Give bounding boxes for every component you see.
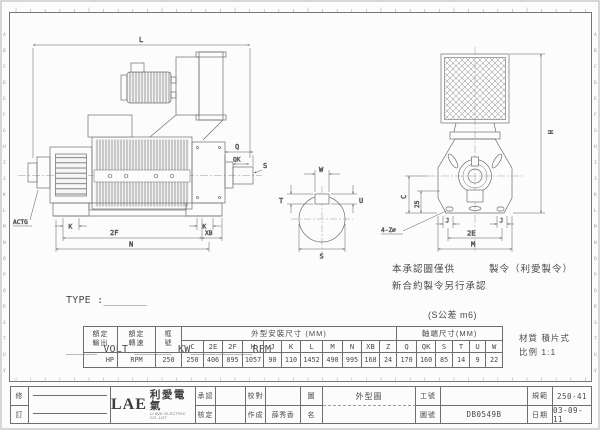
zone-letter: K <box>594 192 597 198</box>
approval-note-3: 新合約製令另行承認 <box>392 278 487 292</box>
dim-header-cell: C <box>182 341 204 353</box>
spec-value: 250-41 <box>553 387 591 405</box>
zone-letter: Q <box>3 288 6 294</box>
dim-header-cell: QK <box>417 341 436 353</box>
date-value: 03-09-11 <box>553 405 591 423</box>
zone-letter: C <box>594 64 597 70</box>
shaft-dims-group-header: 軸端尺寸(MM) <box>397 327 503 341</box>
rated-speed-header: 額定轉速 <box>118 327 156 353</box>
dim-value-cell: 406 <box>204 353 223 368</box>
dim-header-cell: K <box>282 341 301 353</box>
zone-letter: H <box>594 144 597 150</box>
zone-letter: T <box>3 336 6 342</box>
zone-letter: V <box>3 368 6 374</box>
zone-letter: E <box>3 96 6 102</box>
dim-25: 25 <box>414 200 421 208</box>
dim-value-cell: 160 <box>417 353 436 368</box>
zone-letter: N <box>3 240 6 246</box>
zone-letter: U <box>594 352 597 358</box>
proof-value <box>266 387 301 405</box>
approve-label: 承認 <box>196 387 216 405</box>
zone-letter: Q <box>594 288 597 294</box>
drawing-no-value: DB0549B <box>441 405 528 423</box>
title-block: 修 LAE 利愛電氣 LI AVE ELECTRIC CO.,LDT 承認 校對… <box>10 386 592 424</box>
made-by-value: 薛秀香 <box>266 405 301 423</box>
zone-letter: J <box>3 176 6 182</box>
dim-value-cell: 170 <box>397 353 417 368</box>
work-no-label: 工號 <box>416 387 441 405</box>
zone-letter: B <box>3 48 6 54</box>
check-label: 核定 <box>196 405 216 423</box>
dim-N: N <box>129 241 133 249</box>
dim-header-cell: XB <box>362 341 380 353</box>
check-value <box>216 405 246 423</box>
dim-ACTG: ACTG <box>13 219 28 226</box>
rated-speed-value: RPM <box>118 353 156 368</box>
dim-H: H <box>546 130 554 134</box>
dim-value-cell: 14 <box>453 353 470 368</box>
dim-header-cell: M <box>323 341 343 353</box>
dim-value-cell: 168 <box>362 353 380 368</box>
zone-letter: H <box>3 144 6 150</box>
dim-header-cell: N <box>343 341 362 353</box>
dim-value-cell: 85 <box>436 353 453 368</box>
made-label: 作成 <box>246 405 266 423</box>
dim-S-side: S <box>263 162 267 170</box>
zone-letter: L <box>3 208 6 214</box>
zone-letter: R <box>594 304 597 310</box>
proof-label: 校對 <box>246 387 266 405</box>
dim-value-cell: 22 <box>486 353 503 368</box>
zone-letter: O <box>594 256 597 262</box>
dim-header-cell: 2E <box>204 341 223 353</box>
dim-value-cell: 1057 <box>243 353 264 368</box>
dim-header-cell: Z <box>380 341 397 353</box>
zone-letter: B <box>594 48 597 54</box>
frame-no-header: 框號 <box>156 327 182 353</box>
scale-note: 比例 1:1 <box>519 345 570 359</box>
dim-value-cell: 490 <box>323 353 343 368</box>
material-note: 材質 積片式 <box>519 331 570 345</box>
dim-XB: XB <box>205 230 213 237</box>
side-view <box>18 52 262 216</box>
zone-letter: S <box>3 320 6 326</box>
front-view <box>427 47 523 253</box>
dimension-table: 額定輸出 額定轉速 框號 外型安裝尺寸 (MM) 軸端尺寸(MM) C 2E 2… <box>83 326 503 368</box>
zone-letter: N <box>594 240 597 246</box>
drawing-name: 外型圖 <box>323 387 416 405</box>
dim-header-cell: L <box>301 341 323 353</box>
dim-S-section: S <box>320 253 324 261</box>
dim-header-cell: 2F <box>223 341 243 353</box>
drawing-name-label-top: 圖 <box>301 387 323 405</box>
zone-letter: V <box>594 368 597 374</box>
dim-value-cell: 1452 <box>301 353 323 368</box>
shaft-section-view <box>291 186 353 254</box>
company-name-cn: 利愛電氣 <box>150 390 195 411</box>
zone-letter: E <box>594 96 597 102</box>
frame-no-value: 250 <box>156 353 182 368</box>
dim-header-cell: W <box>486 341 503 353</box>
dim-L: L <box>139 36 143 44</box>
shaft-section-dimensions: W T U S <box>279 166 363 261</box>
zone-letter: K <box>3 192 6 198</box>
tolerance-note: (S公差 m6) <box>428 308 477 321</box>
dim-header-cell: S <box>436 341 453 353</box>
zone-letter: O <box>3 256 6 262</box>
company-logo: LAE 利愛電氣 LI AVE ELECTRIC CO.,LDT <box>111 387 196 423</box>
dim-T: T <box>279 197 284 205</box>
dim-value-cell: 9 <box>470 353 486 368</box>
dim-value-cell: 895 <box>223 353 243 368</box>
rated-output-header: 額定輸出 <box>84 327 118 353</box>
approval-note-2: 製令（利愛製令） <box>489 261 573 275</box>
zone-letter: T <box>594 336 597 342</box>
dim-value-cell: 250 <box>182 353 204 368</box>
zone-letter: C <box>3 64 6 70</box>
zone-letter: A <box>3 32 6 38</box>
zone-letter: I <box>594 160 597 166</box>
outline-dims-group-header: 外型安裝尺寸 (MM) <box>182 327 397 341</box>
zone-letter: S <box>594 320 597 326</box>
approve-value <box>216 387 246 405</box>
zone-letter: L <box>594 208 597 214</box>
spec-type-line: TYPE :_______ <box>66 293 296 309</box>
dim-value-cell: 90 <box>264 353 282 368</box>
material-scale-note: 材質 積片式 比例 1:1 <box>519 331 570 359</box>
drawing-no-label: 圖號 <box>416 405 441 423</box>
zone-letter: F <box>594 112 597 118</box>
logo-lae-text: LAE <box>111 396 147 414</box>
zone-letter: J <box>594 176 597 182</box>
zone-letter: P <box>3 272 6 278</box>
zone-letter: M <box>594 224 597 230</box>
dim-M: M <box>471 241 475 249</box>
rated-output-value: HP <box>84 353 118 368</box>
dim-QK: QK <box>233 157 241 164</box>
date-label: 日期 <box>528 405 553 423</box>
revision-label-top: 修 <box>11 387 29 405</box>
revision-label-bottom: 訂 <box>11 405 29 423</box>
dim-value-cell: 995 <box>343 353 362 368</box>
zone-letter: D <box>3 80 6 86</box>
zone-letter: M <box>3 224 6 230</box>
drawing-sheet: L Q QK S K K 2F XB N ACTG <box>0 0 600 430</box>
drawing-name-label-bottom: 名 <box>301 405 323 423</box>
zone-letter: G <box>594 128 597 134</box>
dim-2E: 2E <box>467 230 475 238</box>
approval-note-1: 本承認圖僅供 <box>392 261 455 275</box>
dim-Q: Q <box>235 143 239 151</box>
zone-letter: F <box>3 112 6 118</box>
dim-header-cell: U <box>470 341 486 353</box>
dim-header-cell: H <box>243 341 264 353</box>
zone-letter: U <box>3 352 6 358</box>
dim-K-left: K <box>69 224 73 231</box>
revision-entry-area <box>29 387 111 423</box>
work-no-value <box>441 387 528 405</box>
dim-C: C <box>400 195 408 199</box>
dim-4-z-holes: 4-Z∅ <box>381 227 396 234</box>
dim-W: W <box>319 166 324 174</box>
company-name-en: LI AVE ELECTRIC CO.,LDT <box>150 412 195 420</box>
dim-header-cell: Q <box>397 341 417 353</box>
zone-letter: R <box>3 304 6 310</box>
dim-value-cell: 24 <box>380 353 397 368</box>
dim-J-right: J <box>500 218 504 225</box>
dim-header-cell: J <box>264 341 282 353</box>
spec-label: 規範 <box>528 387 553 405</box>
zone-letter: A <box>594 32 597 38</box>
dim-2F: 2F <box>110 229 118 237</box>
zone-letter: D <box>594 80 597 86</box>
dim-header-cell: T <box>453 341 470 353</box>
zone-letter: P <box>594 272 597 278</box>
dim-J-left: J <box>446 218 450 225</box>
dim-value-cell: 110 <box>282 353 301 368</box>
zone-letter: I <box>3 160 6 166</box>
zone-letter: G <box>3 128 6 134</box>
dim-U: U <box>359 197 363 205</box>
drawing-name-sub <box>323 405 416 423</box>
